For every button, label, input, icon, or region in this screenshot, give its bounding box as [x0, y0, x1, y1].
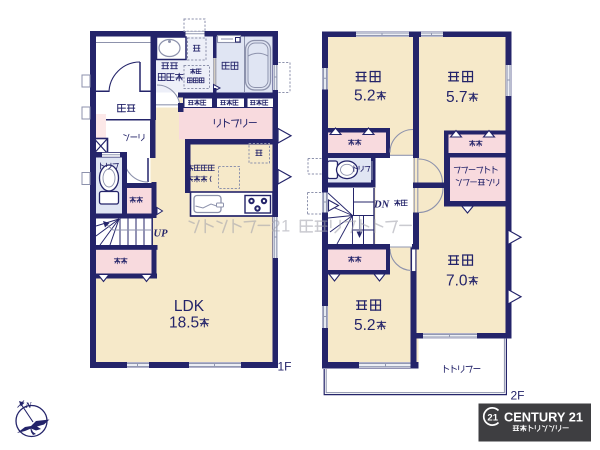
svg-text:1F: 1F	[278, 360, 292, 374]
svg-text:5.2: 5.2	[354, 317, 376, 334]
svg-text:5.2: 5.2	[354, 87, 376, 104]
svg-text:5.7: 5.7	[446, 89, 468, 106]
svg-text:2: 2	[271, 218, 280, 236]
svg-text:18.5: 18.5	[169, 314, 199, 331]
svg-text:N: N	[25, 400, 33, 410]
svg-text:LDK: LDK	[174, 298, 205, 315]
svg-text:DN: DN	[373, 200, 390, 211]
svg-text:1: 1	[281, 218, 290, 236]
svg-text:CENTURY 21: CENTURY 21	[504, 410, 583, 425]
svg-text:2F: 2F	[511, 389, 525, 403]
svg-text:7.0: 7.0	[446, 272, 468, 289]
svg-text:21: 21	[487, 412, 498, 423]
svg-text:UP: UP	[154, 229, 169, 240]
